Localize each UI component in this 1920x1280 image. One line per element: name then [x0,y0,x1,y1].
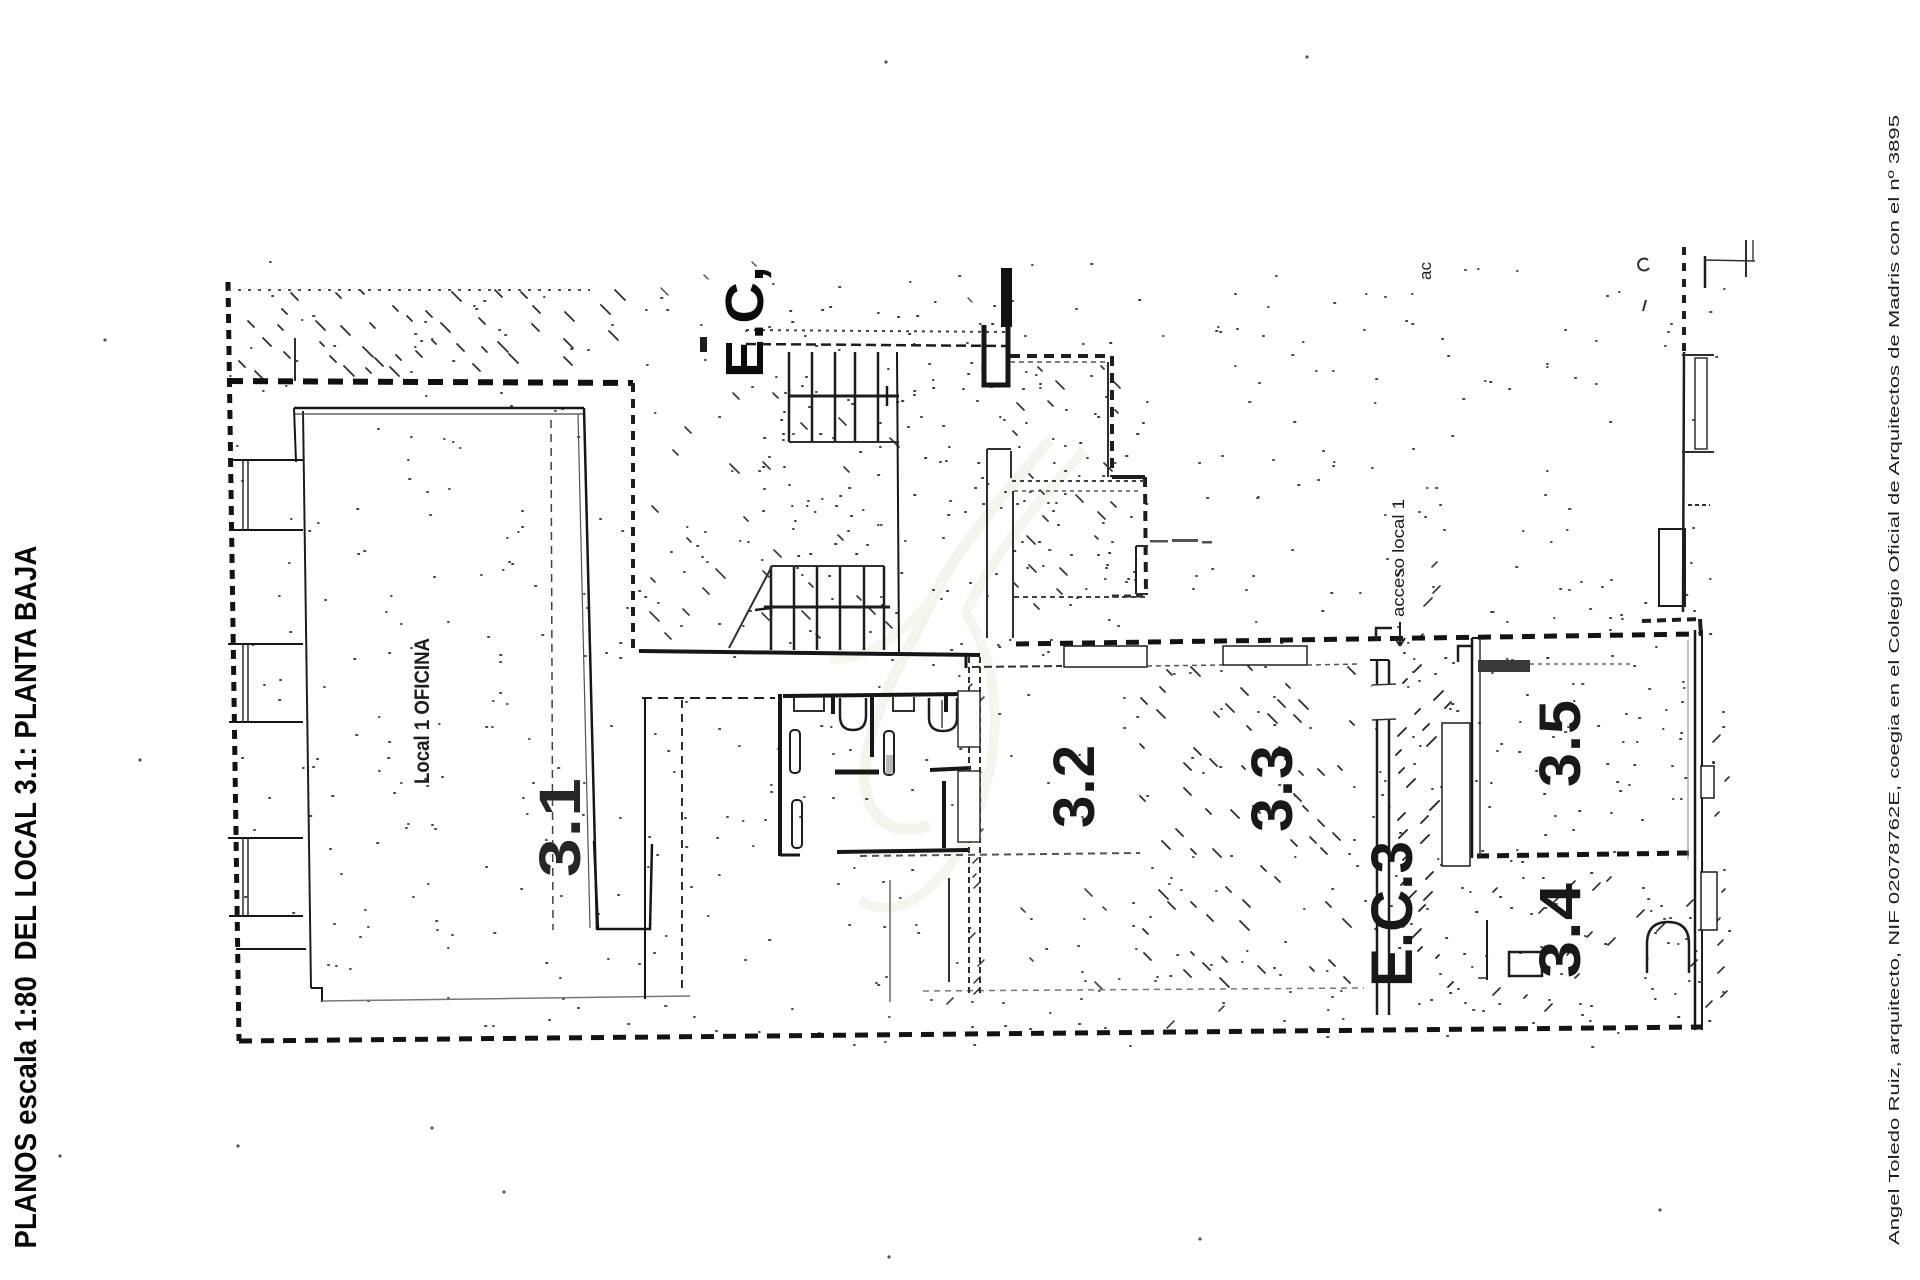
svg-text:E.C.3: E.C.3 [1360,841,1425,987]
svg-text:3.1: 3.1 [528,777,593,877]
svg-text:acceso local 1: acceso local 1 [1389,499,1408,617]
svg-text:E.C,: E.C, [715,266,775,378]
svg-text:Local 1 OFICINA: Local 1 OFICINA [411,638,434,784]
svg-text:ac: ac [1416,262,1435,280]
svg-text:PLANOS escala 1:80 DEL LOCAL: PLANOS escala 1:80 DEL LOCAL 3.1: PLANTA… [8,546,43,1249]
svg-text:Angel Toledo Ruiz, arquitecto,: Angel Toledo Ruiz, arquitecto, NIF 02078… [1886,115,1903,1245]
svg-text:3.4: 3.4 [1528,882,1593,978]
svg-text:3.5: 3.5 [1528,699,1593,787]
svg-text:3.3: 3.3 [1240,744,1305,832]
svg-text:3.2: 3.2 [1042,744,1107,828]
